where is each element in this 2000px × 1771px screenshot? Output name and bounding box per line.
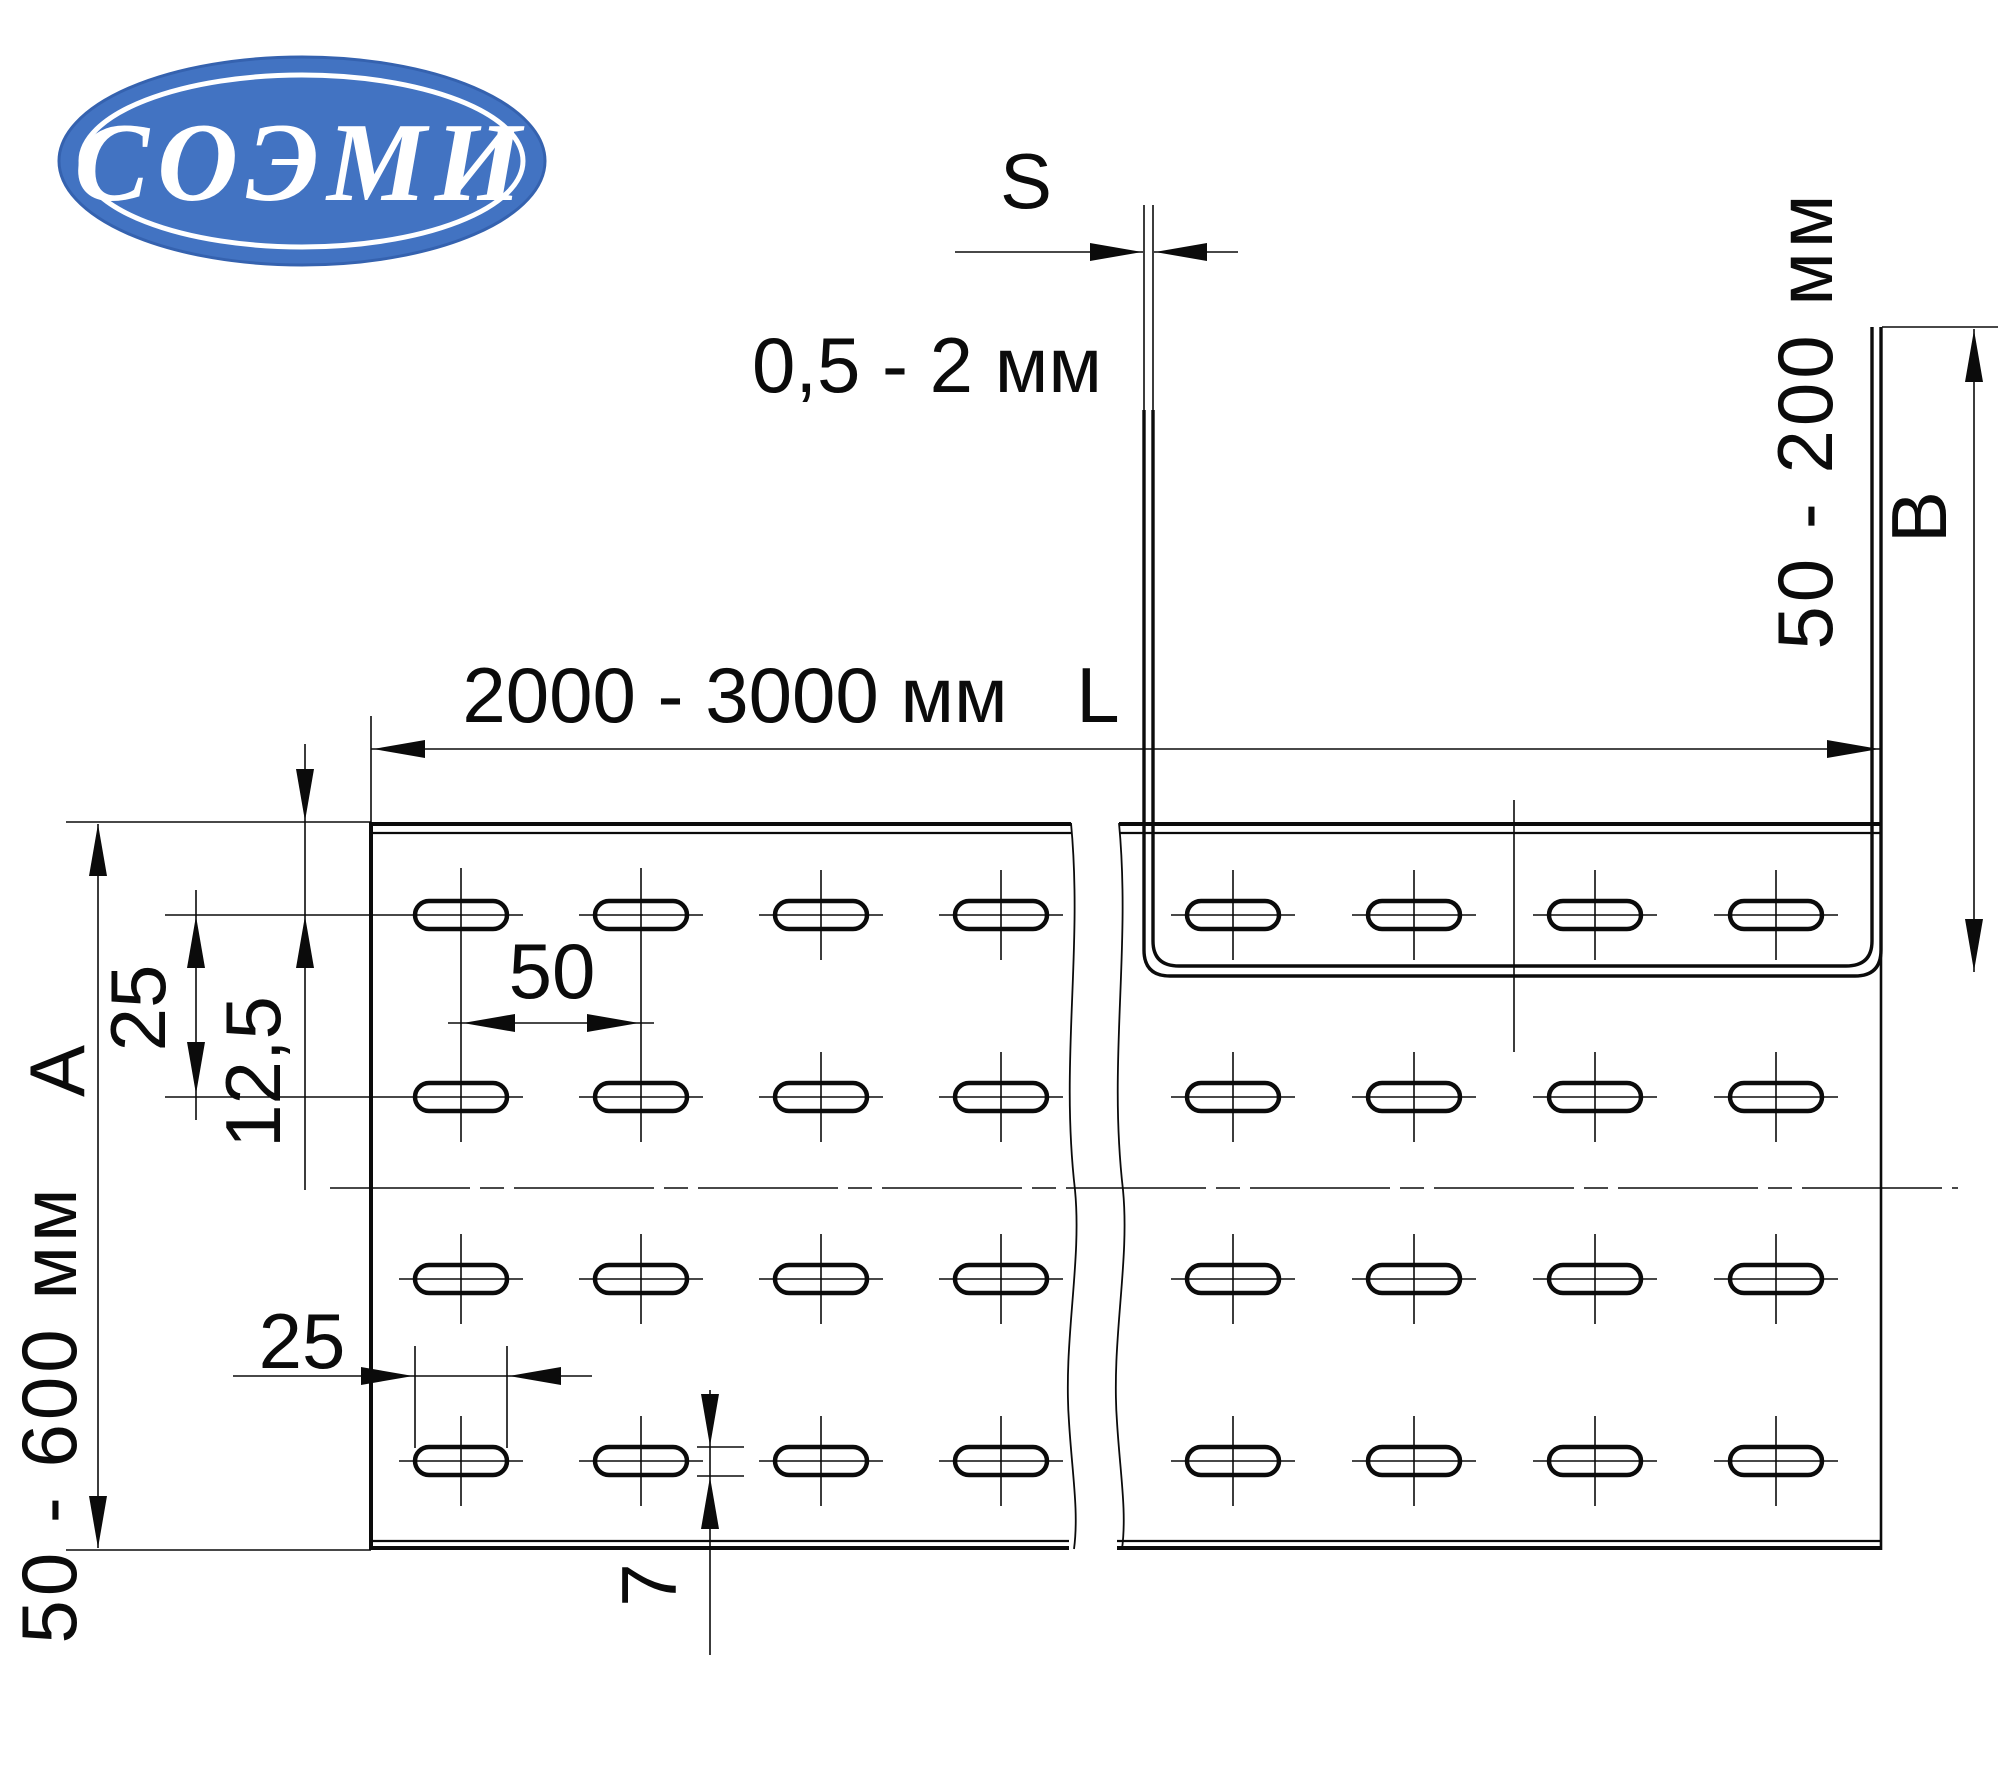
company-logo: СОЭМИ <box>59 57 545 265</box>
logo-text: СОЭМИ <box>74 101 529 225</box>
break-line <box>1068 823 1077 1549</box>
length-range-label: 2000 - 3000 мм <box>462 651 1007 739</box>
row-pitch-label: 25 <box>94 965 182 1052</box>
first-row-offset-label: 12,5 <box>209 996 297 1148</box>
slot-width-label: 7 <box>605 1563 693 1606</box>
drawing-canvas: СОЭМИ S 0,5 - 2 мм 50 - 200 мм B <box>0 0 2000 1771</box>
thickness-label: S <box>1000 137 1052 225</box>
technical-drawing: СОЭМИ S 0,5 - 2 мм 50 - 200 мм B <box>0 0 2000 1771</box>
height-label: B <box>1875 491 1963 543</box>
length-label: L <box>1076 651 1119 739</box>
height-range-label: 50 - 200 мм <box>1761 190 1849 649</box>
thickness-range-label: 0,5 - 2 мм <box>752 321 1102 409</box>
column-pitch-label: 50 <box>509 927 596 1015</box>
plan-view: 2000 - 3000 мм L A 50 - 600 мм 12,5 25 5… <box>5 651 1958 1655</box>
break-line <box>1116 823 1125 1549</box>
dimension-arrowheads <box>89 243 1983 1548</box>
width-range-label: 50 - 600 мм <box>5 1184 93 1643</box>
slot-length-label: 25 <box>259 1297 346 1385</box>
perforation-slots <box>165 868 1838 1506</box>
width-label: A <box>13 1045 101 1097</box>
